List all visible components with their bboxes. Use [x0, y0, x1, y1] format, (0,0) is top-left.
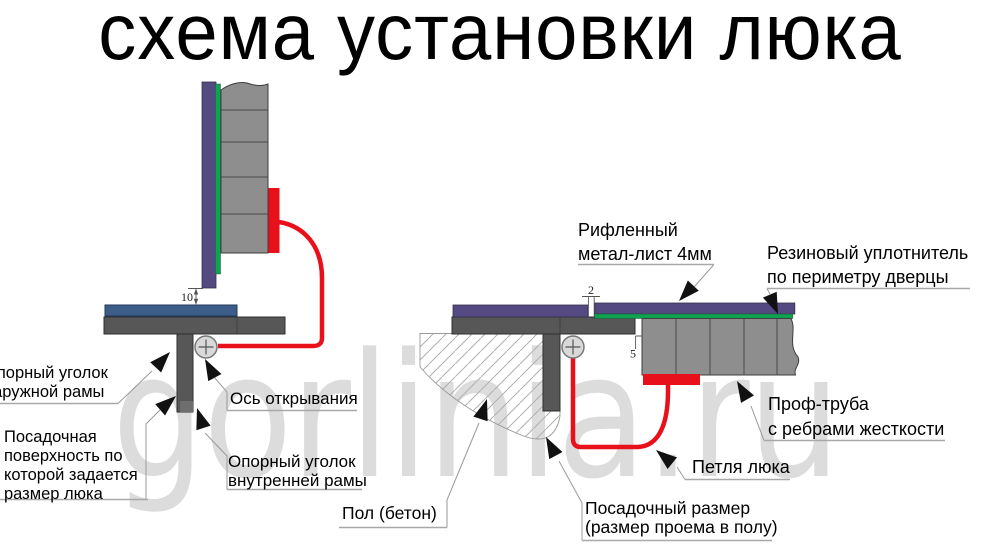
concrete-floor-hatch — [420, 334, 560, 440]
inner-frame-cap — [180, 401, 193, 412]
right-section-diagram: 2 5 — [420, 283, 799, 447]
diagram-page: gorlinia.ru схема установки люка 10 — [0, 0, 1000, 560]
rubber-seal-horizontal — [595, 314, 793, 319]
label-riffled-sheet: Рифленный метал-лист 4мм — [578, 219, 712, 266]
outer-frame-angle-right — [452, 317, 635, 334]
outer-frame-angle — [104, 317, 285, 334]
floor-finish-bar — [105, 305, 237, 316]
door-sheet-horizontal — [595, 303, 795, 314]
svg-text:5: 5 — [630, 347, 636, 361]
label-hinge: Петля люка — [692, 456, 790, 480]
label-opening-axis: Ось открывания — [230, 389, 358, 408]
inner-frame-angle — [177, 334, 193, 412]
inner-frame-angle-right — [543, 334, 560, 411]
svg-text:2: 2 — [588, 283, 594, 297]
svg-text:10: 10 — [181, 290, 193, 304]
label-inner-frame-angle: Опорный уголок внутренней рамы — [228, 452, 367, 490]
opening-axis-circle-right — [562, 336, 584, 358]
label-seating-surface: Посадочная поверхность по которой задает… — [4, 428, 138, 504]
hinge-plate-left — [269, 188, 280, 253]
rubber-seal-vertical — [216, 84, 221, 274]
profile-tube-horizontal — [642, 319, 799, 376]
hinge-plate-right — [643, 374, 700, 385]
left-section-diagram: 10 — [104, 82, 322, 412]
floor-sheet-segment — [453, 305, 588, 317]
dimension-10: 10 — [181, 289, 203, 305]
profile-tube-vertical — [221, 82, 268, 253]
label-floor-concrete: Пол (бетон) — [342, 504, 437, 523]
opening-axis-circle — [195, 336, 217, 358]
label-profile-tube: Проф-труба с ребрами жесткости — [768, 392, 944, 442]
label-rubber-seal: Резиновый уплотнитель по периметру дверц… — [767, 242, 968, 289]
label-outer-frame-angle: Опорный уголок наружной рамы — [0, 364, 108, 402]
dimension-5: 5 — [630, 336, 642, 361]
door-sheet-vertical — [202, 82, 216, 288]
label-fit-size: Посадочный размер (размер проема в полу) — [585, 499, 778, 537]
page-title: схема установки люка — [98, 0, 901, 76]
